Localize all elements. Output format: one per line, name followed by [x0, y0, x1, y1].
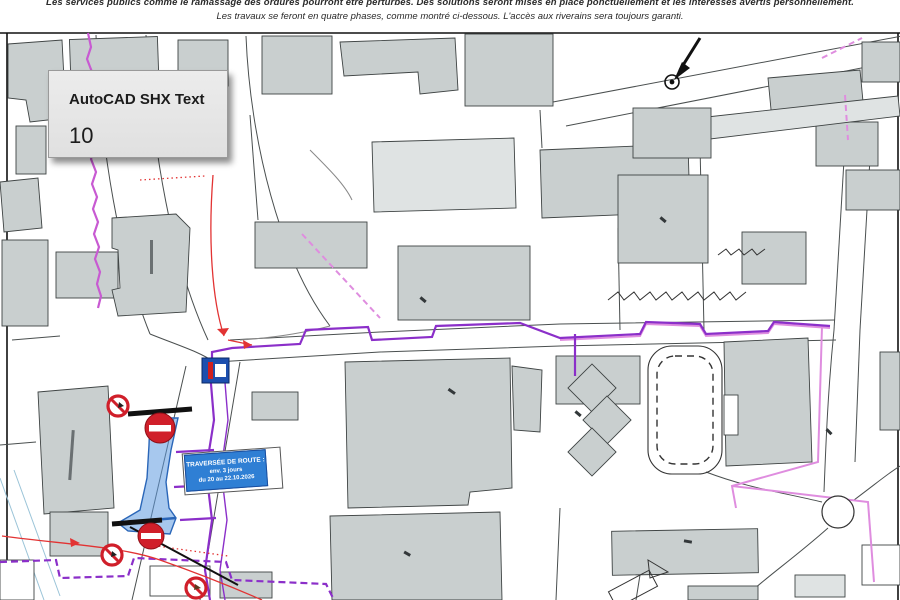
road-closed-flag-icon [202, 358, 229, 383]
work-zone-label: TRAVERSÉE DE ROUTE : env. 3 jours du 20 … [184, 449, 268, 492]
no-stopping-icon [102, 545, 122, 565]
no-stopping-icon [186, 578, 206, 598]
no-stopping-icon [108, 396, 128, 416]
no-entry-icon [138, 523, 164, 549]
no-entry-icon [145, 413, 175, 443]
popup-title: AutoCAD SHX Text [69, 91, 205, 108]
popup-value: 10 [69, 123, 93, 149]
work-label-line-3: du 20 au 22.10.2026 [198, 473, 254, 485]
road-closure-bars [112, 409, 238, 585]
sports-track [648, 346, 722, 474]
notice-line-2: Les travaux se feront en quatre phases, … [0, 9, 900, 24]
notice-line-1: Les services publics comme le ramassage … [0, 0, 900, 9]
screenshot-root: Les services publics comme le ramassage … [0, 0, 900, 600]
notice-text: Les services publics comme le ramassage … [0, 0, 900, 24]
shx-text-popup[interactable]: AutoCAD SHX Text 10 [48, 70, 228, 158]
survey-point-arrow [665, 38, 700, 89]
